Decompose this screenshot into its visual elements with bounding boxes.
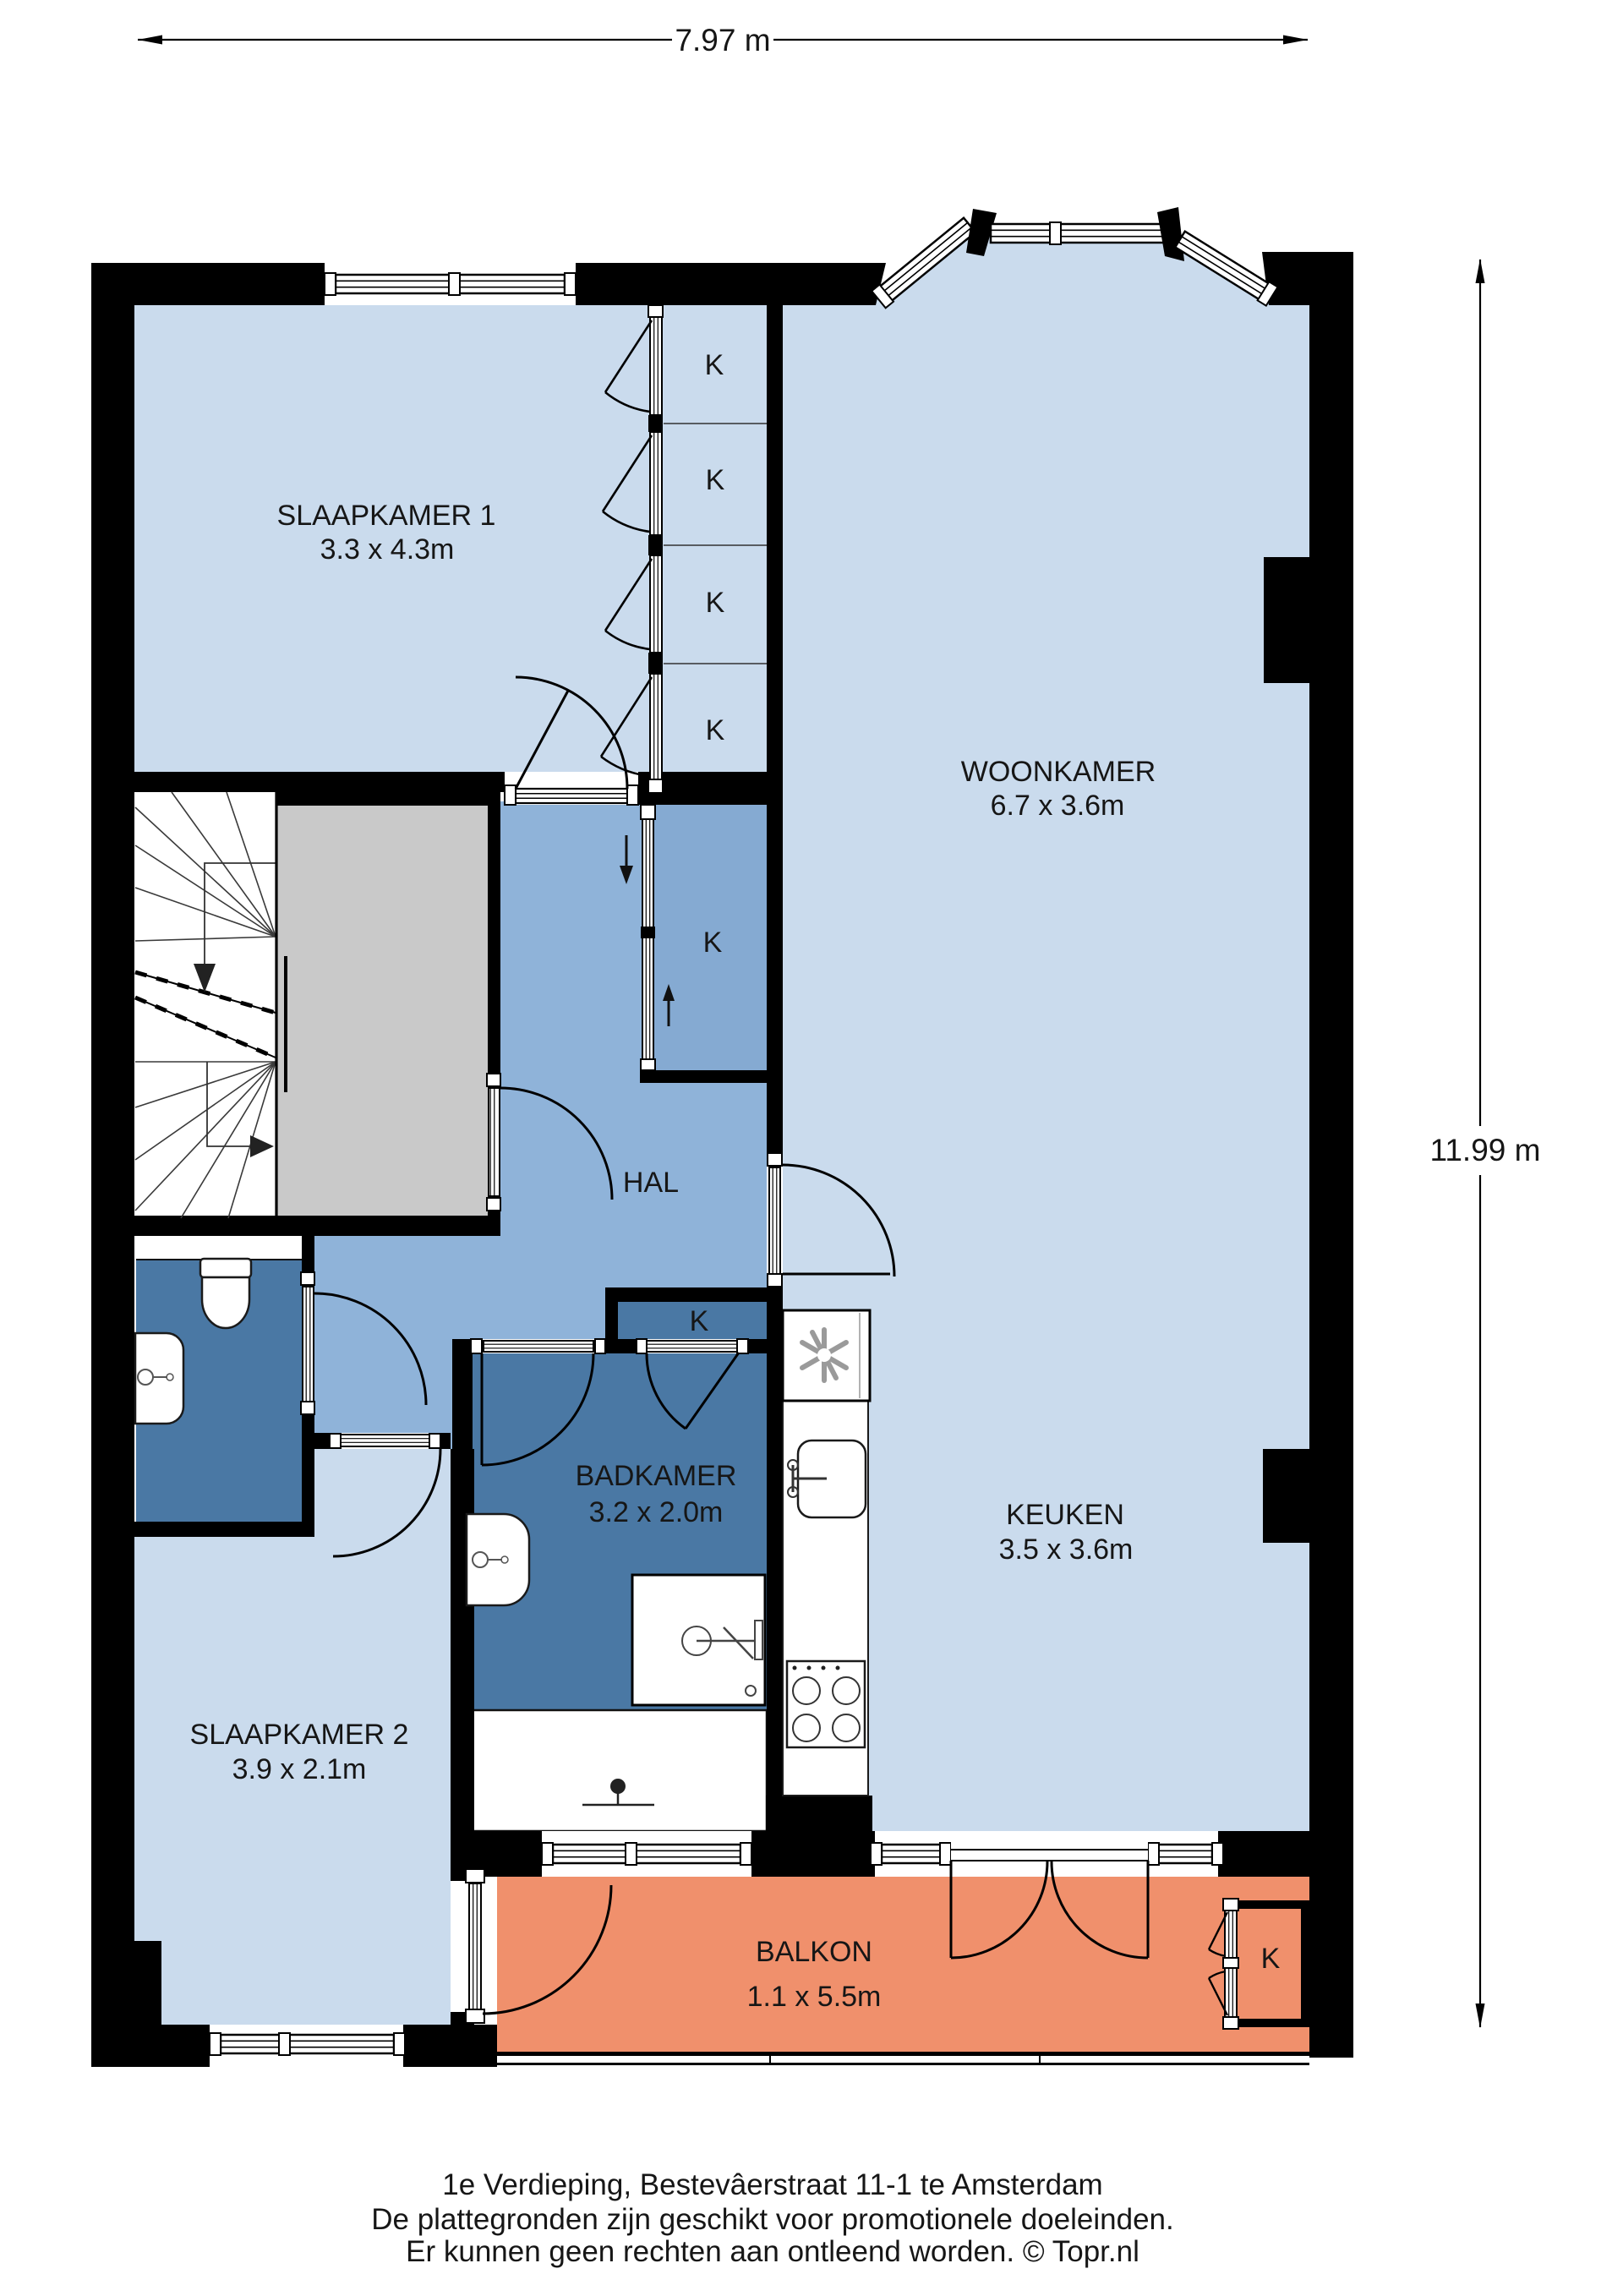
svg-text:K: K [706,464,725,496]
svg-text:K: K [706,714,725,746]
svg-text:K: K [1261,1943,1281,1975]
svg-text:De plattegronden zijn geschikt: De plattegronden zijn geschikt voor prom… [371,2203,1174,2236]
svg-text:1.1 x 5.5m: 1.1 x 5.5m [747,1981,882,2013]
svg-text:3.9 x 2.1m: 3.9 x 2.1m [232,1753,367,1785]
svg-text:3.5 x 3.6m: 3.5 x 3.6m [999,1533,1134,1566]
svg-text:KEUKEN: KEUKEN [1006,1499,1124,1531]
svg-text:7.97 m: 7.97 m [675,23,770,57]
svg-text:K: K [705,349,724,381]
svg-text:3.2 x 2.0m: 3.2 x 2.0m [589,1496,724,1528]
svg-text:3.3 x 4.3m: 3.3 x 4.3m [320,533,455,566]
svg-text:K: K [703,927,723,959]
svg-text:WOONKAMER: WOONKAMER [961,756,1156,788]
svg-text:K: K [690,1305,709,1337]
svg-text:6.7 x 3.6m: 6.7 x 3.6m [991,790,1125,822]
svg-text:BALKON: BALKON [756,1936,872,1968]
svg-text:Er kunnen geen rechten aan ont: Er kunnen geen rechten aan ontleend word… [406,2235,1139,2268]
svg-text:K: K [706,587,725,619]
svg-text:HAL: HAL [623,1167,679,1199]
svg-text:BADKAMER: BADKAMER [576,1460,737,1492]
svg-text:11.99 m: 11.99 m [1430,1133,1541,1167]
svg-text:1e Verdieping, Bestevâerstraat: 1e Verdieping, Bestevâerstraat 11-1 te A… [442,2168,1102,2201]
svg-text:SLAAPKAMER 2: SLAAPKAMER 2 [190,1719,409,1751]
svg-text:SLAAPKAMER 1: SLAAPKAMER 1 [277,500,496,532]
